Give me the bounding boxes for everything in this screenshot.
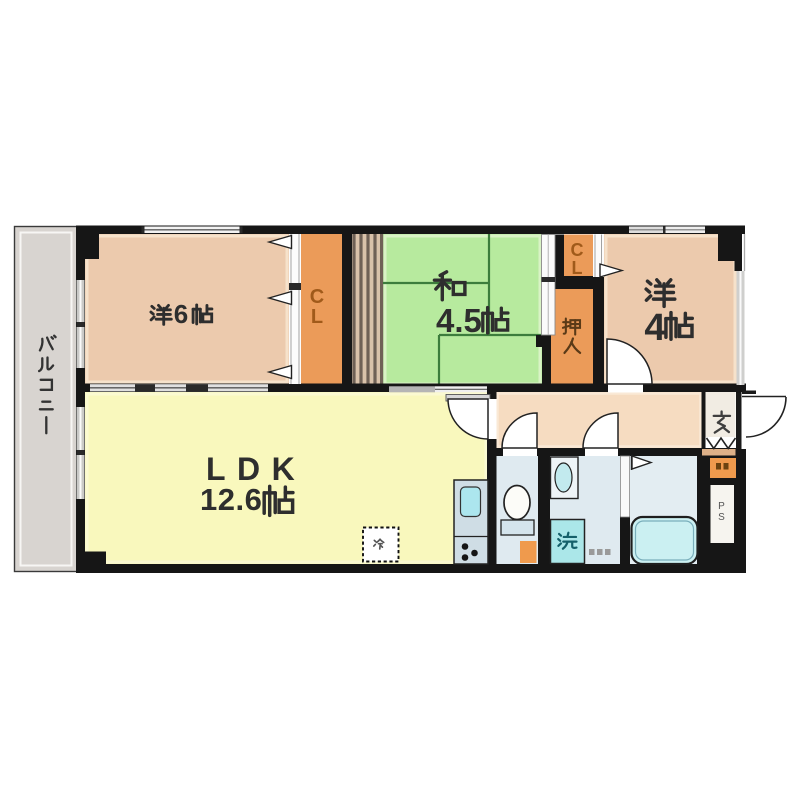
svg-text:C: C (310, 286, 324, 308)
svg-text:P: P (718, 501, 725, 512)
svg-text:12.6: 12.6 (200, 482, 262, 517)
svg-text:L: L (311, 306, 323, 328)
svg-text:4: 4 (644, 307, 665, 349)
svg-text:C: C (571, 240, 584, 260)
svg-text:6: 6 (174, 299, 188, 329)
svg-text:S: S (718, 512, 725, 523)
svg-text:4.5: 4.5 (436, 302, 482, 339)
svg-text:L: L (572, 258, 583, 278)
